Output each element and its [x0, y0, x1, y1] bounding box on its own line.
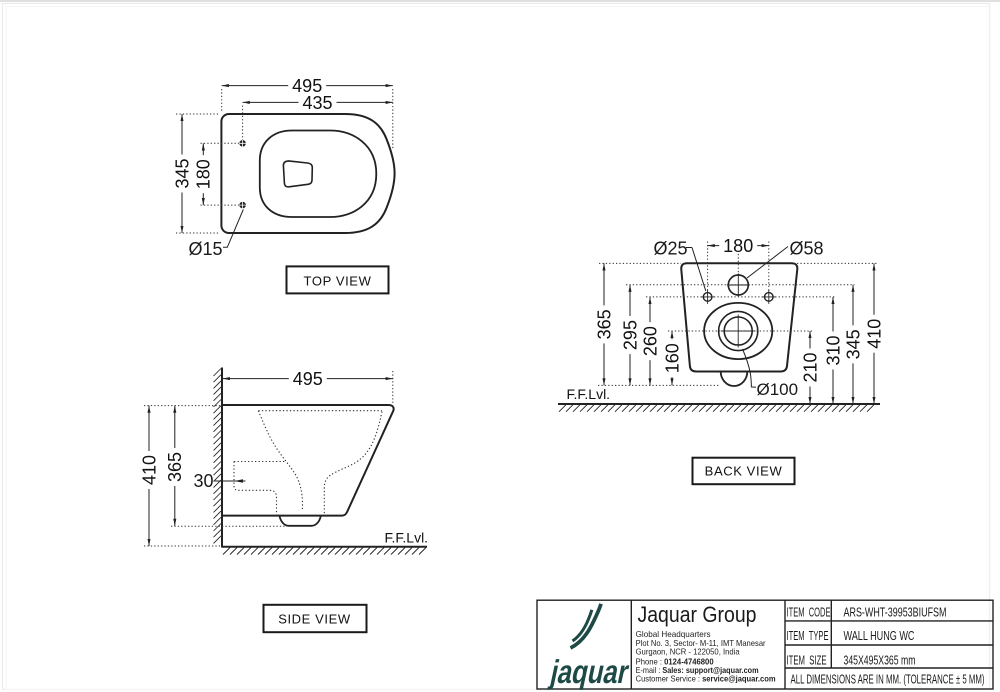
svg-text:Jaquar Group: Jaquar Group: [638, 602, 757, 627]
svg-text:ALL DIMENSIONS ARE IN MM. (TOL: ALL DIMENSIONS ARE IN MM. (TOLERANCE ± 5…: [791, 672, 985, 687]
svg-text:260: 260: [640, 326, 660, 356]
svg-text:ARS-WHT-39953BIUFSM: ARS-WHT-39953BIUFSM: [844, 605, 947, 620]
svg-text:160: 160: [662, 343, 682, 373]
svg-text:495: 495: [293, 369, 323, 389]
svg-text:F.F.Lvl.: F.F.Lvl.: [385, 530, 429, 546]
svg-text:jaquar: jaquar: [547, 654, 633, 691]
svg-text:210: 210: [800, 352, 820, 382]
svg-text:345: 345: [172, 158, 192, 188]
svg-text:30: 30: [194, 471, 214, 491]
svg-text:BACK VIEW: BACK VIEW: [705, 464, 783, 479]
svg-text:365: 365: [594, 309, 614, 339]
svg-text:180: 180: [723, 236, 753, 256]
svg-text:F.F.Lvl.: F.F.Lvl.: [567, 386, 611, 402]
svg-text:TOP VIEW: TOP VIEW: [304, 274, 372, 289]
svg-text:Ø58: Ø58: [790, 239, 824, 259]
svg-text:180: 180: [194, 159, 214, 189]
svg-text:ITEM TYPE: ITEM TYPE: [787, 628, 829, 643]
svg-text:Ø15: Ø15: [189, 239, 223, 259]
svg-text:365: 365: [165, 452, 185, 482]
svg-text:ITEM SIZE: ITEM SIZE: [787, 653, 827, 668]
svg-text:Ø100: Ø100: [757, 380, 799, 399]
svg-text:410: 410: [139, 455, 159, 485]
svg-text:ITEM CODE: ITEM CODE: [787, 605, 831, 620]
svg-text:Ø25: Ø25: [654, 239, 688, 259]
svg-text:Customer Service : service@jaq: Customer Service : service@jaquar.com: [636, 674, 776, 684]
svg-text:SIDE VIEW: SIDE VIEW: [278, 612, 351, 627]
svg-text:295: 295: [620, 320, 640, 350]
svg-text:Gurgaon, NCR - 122050, India: Gurgaon, NCR - 122050, India: [636, 647, 740, 657]
svg-text:345: 345: [843, 329, 863, 359]
svg-text:435: 435: [302, 93, 332, 113]
svg-text:310: 310: [823, 335, 843, 365]
svg-text:410: 410: [864, 319, 884, 349]
svg-text:345X495X365 mm: 345X495X365 mm: [844, 653, 916, 668]
svg-text:WALL HUNG WC: WALL HUNG WC: [844, 628, 915, 643]
